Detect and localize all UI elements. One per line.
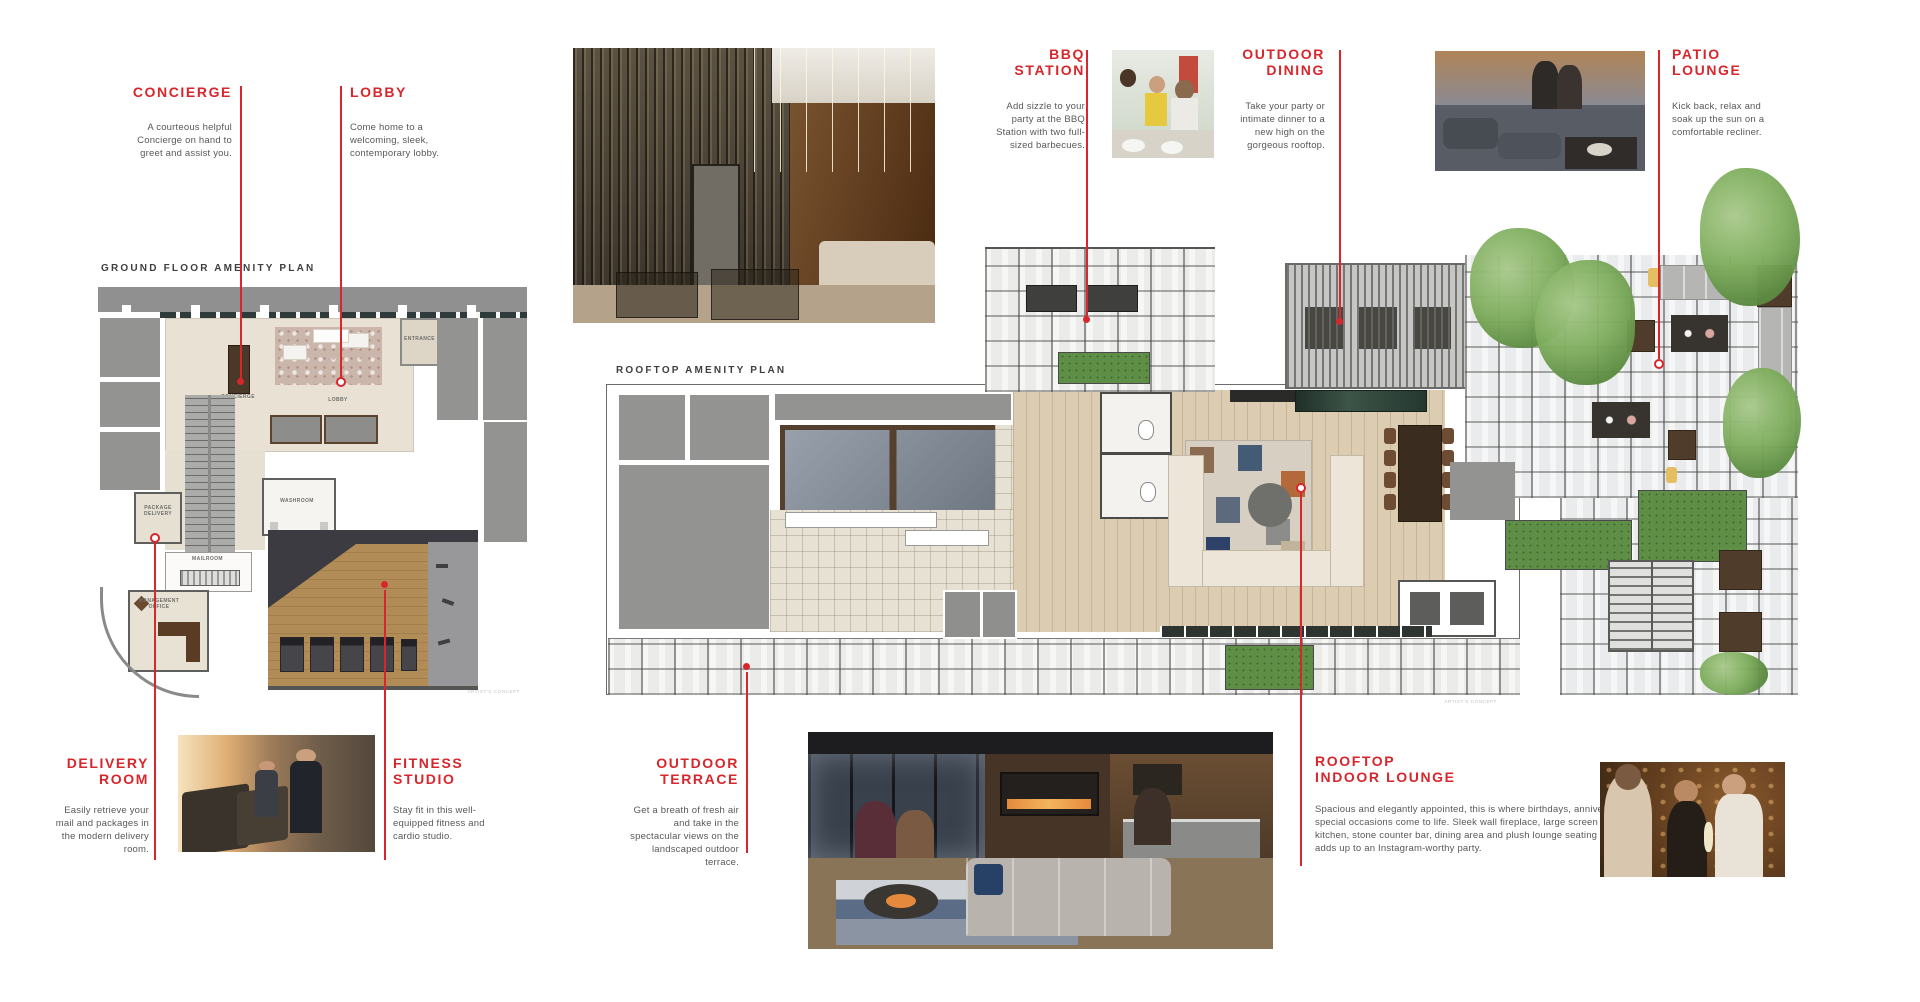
skylight-windows xyxy=(780,425,1006,520)
plate xyxy=(1122,139,1144,152)
callout-outdoor-terrace-title: OUTDOOR TERRACE xyxy=(647,755,739,787)
wall-gap xyxy=(100,377,160,382)
brochure-page: CONCIERGE A courteous helpful Concierge … xyxy=(0,0,1920,1002)
patio-lounge-chair xyxy=(1719,550,1762,590)
sectional-sofa xyxy=(966,858,1171,936)
window-mullion xyxy=(890,430,897,515)
concierge-desk xyxy=(228,345,250,394)
roof-strip-room xyxy=(775,394,1011,420)
callout-delivery-room-title: DELIVERY ROOM xyxy=(57,755,149,787)
cushion-seams xyxy=(966,858,1171,936)
fireplace-flames xyxy=(1007,799,1091,809)
patio-lounge-photo xyxy=(1435,51,1645,171)
patio-lounge-chair xyxy=(1719,612,1762,652)
treadmill xyxy=(370,637,394,672)
treadmill xyxy=(310,637,334,672)
outdoor-dining-photo xyxy=(1112,50,1214,158)
callout-outdoor-terrace-description: Get a breath of fresh air and take in th… xyxy=(629,804,739,869)
leader-line-outdoor-dining xyxy=(1339,50,1341,318)
callout-fitness-studio-description: Stay fit in this well-equipped fitness a… xyxy=(393,804,493,843)
man-white-shirt xyxy=(1715,794,1763,877)
callout-delivery-room-description: Easily retrieve your mail and packages i… xyxy=(50,804,149,856)
bbq-grill xyxy=(1087,285,1138,312)
column xyxy=(467,305,476,318)
washroom xyxy=(262,478,336,536)
bbq-grill xyxy=(1026,285,1077,312)
callout-outdoor-dining-description: Take your party or intimate dinner to a … xyxy=(1224,100,1325,152)
callout-bbq-station-title: BBQ STATION xyxy=(975,46,1085,78)
runner-body xyxy=(290,761,322,834)
wood-feature-wall xyxy=(985,754,1111,858)
treadmill xyxy=(340,637,364,672)
leader-line-bbq-station xyxy=(1086,50,1088,316)
callout-patio-lounge-description: Kick back, relax and soak up the sun on … xyxy=(1672,100,1772,139)
column xyxy=(260,305,269,318)
wall-gap xyxy=(100,427,160,432)
kitchen-appliance xyxy=(1410,592,1440,625)
tv-fireplace-wall xyxy=(1230,390,1295,402)
dining-chair xyxy=(1442,428,1454,444)
service-rooms xyxy=(100,318,160,490)
rooftop-washrooms xyxy=(1100,392,1172,519)
person-head xyxy=(1722,774,1746,797)
service-room xyxy=(1450,462,1515,520)
ground-plan-back-band xyxy=(98,287,527,312)
wall-gap xyxy=(478,318,483,420)
leader-marker-bbq-station xyxy=(1083,316,1090,323)
mailboxes xyxy=(180,570,240,586)
wine-glass xyxy=(1704,822,1713,852)
woman-black-dress xyxy=(1667,801,1708,877)
person-head xyxy=(1120,69,1136,86)
leader-marker-concierge xyxy=(237,378,244,385)
fitness-south-wall xyxy=(268,686,478,690)
lounge-sectional-sofa xyxy=(1330,455,1364,587)
room-label-lobby: LOBBY xyxy=(308,397,368,403)
lounge-sectional-sofa xyxy=(1168,455,1204,587)
leader-line-lobby xyxy=(340,86,342,378)
callout-fitness-studio-title: FITNESS STUDIO xyxy=(393,755,493,787)
fruit-bowl xyxy=(1587,143,1613,156)
stretch-mat-area xyxy=(428,542,478,688)
person-silhouette xyxy=(1532,61,1559,111)
sofa-cushion xyxy=(1498,133,1561,159)
person-silhouette xyxy=(1134,788,1171,844)
column xyxy=(329,305,338,318)
callout-rooftop-indoor-lounge-title: ROOFTOP INDOOR LOUNGE xyxy=(1315,753,1535,785)
outdoor-dining-pergola xyxy=(1285,263,1469,389)
tree xyxy=(1700,652,1768,695)
dining-chair xyxy=(1384,428,1396,444)
patio-table xyxy=(1671,315,1728,352)
leader-line-outdoor-terrace xyxy=(746,672,748,853)
rooftop-indoor-lounge-photo xyxy=(808,732,1273,949)
room-label-package-delivery: PACKAGE DELIVERY xyxy=(134,505,182,517)
tree xyxy=(1700,168,1800,306)
column xyxy=(398,305,407,318)
leader-marker-rooftop-indoor-lounge xyxy=(1296,483,1306,493)
dumbbell xyxy=(438,639,451,646)
elevator xyxy=(324,415,378,444)
leader-marker-outdoor-dining xyxy=(1336,318,1343,325)
toilet xyxy=(1138,420,1154,440)
toilet xyxy=(1140,482,1156,502)
lounge-dining-table xyxy=(1398,425,1442,522)
ceiling xyxy=(808,732,1273,754)
dumbbell xyxy=(442,598,455,606)
room-label-entrance: ENTRANCE xyxy=(400,336,439,342)
tree xyxy=(1535,260,1635,385)
washroom-fixture xyxy=(320,522,328,530)
leader-line-fitness-studio xyxy=(384,590,386,860)
lobby-table xyxy=(313,329,349,343)
treadmill xyxy=(280,637,304,672)
leader-line-patio-lounge xyxy=(1658,50,1660,359)
rug-patch xyxy=(1216,497,1240,523)
person-head xyxy=(1615,764,1641,789)
patio-armchair xyxy=(1668,430,1696,460)
callout-bbq-station-description: Add sizzle to your party at the BBQ Stat… xyxy=(983,100,1085,152)
leader-line-delivery-room xyxy=(154,543,156,860)
ground-plan-title: GROUND FLOOR AMENITY PLAN xyxy=(101,263,315,274)
wall-gap xyxy=(980,592,983,637)
person-silhouette xyxy=(855,801,897,857)
person-head xyxy=(1149,76,1165,93)
terrace-bench xyxy=(905,530,989,546)
plate xyxy=(1161,141,1183,154)
yellow-top xyxy=(1145,93,1167,125)
round-ottoman xyxy=(1248,483,1292,527)
leader-marker-patio-lounge xyxy=(1654,359,1664,369)
person-silhouette xyxy=(896,810,933,858)
column xyxy=(122,305,131,318)
lobby-photo xyxy=(573,48,935,323)
fire-bowl xyxy=(886,894,916,908)
dumbbell xyxy=(436,564,448,568)
wall-gap xyxy=(685,395,690,465)
callout-concierge-title: CONCIERGE xyxy=(112,84,232,100)
service-room xyxy=(943,590,1017,639)
rug-patch xyxy=(1238,445,1262,471)
stone-counter-bar xyxy=(1295,390,1427,412)
dining-chair xyxy=(1384,472,1396,488)
yellow-cushion xyxy=(1666,467,1677,483)
runner-body xyxy=(255,770,279,817)
callout-outdoor-dining-title: OUTDOOR DINING xyxy=(1215,46,1325,78)
fire-table xyxy=(864,884,938,919)
washroom-divider-wall xyxy=(1102,452,1170,455)
wall-fireplace xyxy=(1000,772,1099,816)
pendant-lights xyxy=(754,48,935,172)
elliptical-trainer xyxy=(401,639,417,671)
leader-marker-lobby xyxy=(336,377,346,387)
person-silhouette xyxy=(1557,65,1582,111)
dining-chair xyxy=(1384,450,1396,466)
curved-facade-wall xyxy=(100,587,199,698)
fitness-studio-photo xyxy=(178,735,375,852)
kitchen-appliance xyxy=(1450,592,1484,625)
leader-line-concierge xyxy=(240,86,242,382)
lounge-glazed-wall xyxy=(1160,626,1432,637)
tiled-terrace-floor xyxy=(995,425,1013,510)
lounge-sectional-sofa xyxy=(1202,550,1334,587)
patio-table xyxy=(1565,137,1636,168)
planter-hedge xyxy=(1058,352,1150,384)
ground-floor-plan: CONCIERGE LOBBY ENTRANCE WASHROOM PACKAG… xyxy=(98,287,527,700)
leader-line-rooftop-indoor-lounge xyxy=(1300,493,1302,866)
stairwell xyxy=(185,395,235,560)
column xyxy=(191,305,200,318)
elevator xyxy=(270,415,322,444)
room-label-washroom: WASHROOM xyxy=(266,498,328,504)
party-photo xyxy=(1600,762,1785,877)
mechanical-rooms xyxy=(619,395,769,629)
lobby-sofa xyxy=(283,345,307,360)
glass-coffee-table xyxy=(616,272,698,318)
wall-gap xyxy=(619,460,769,465)
stair-divider xyxy=(1651,562,1653,650)
callout-concierge-description: A courteous helpful Concierge on hand to… xyxy=(120,121,232,160)
white-shirt xyxy=(1171,98,1198,135)
callout-patio-lounge-title: PATIO LOUNGE xyxy=(1672,46,1782,78)
patio-table xyxy=(1592,402,1650,438)
washroom-fixture xyxy=(270,522,278,530)
pergola-slats xyxy=(1287,265,1467,387)
dining-chair xyxy=(1384,494,1396,510)
leader-marker-delivery-room xyxy=(150,533,160,543)
side-room xyxy=(484,422,527,542)
leader-marker-fitness-studio xyxy=(381,581,388,588)
sofa-cushion xyxy=(1443,118,1498,149)
room-label-mailroom: MAILROOM xyxy=(165,556,250,562)
roof-stairs xyxy=(1608,560,1694,652)
leader-marker-outdoor-terrace xyxy=(743,663,750,670)
callout-lobby-description: Come home to a welcoming, sleek, contemp… xyxy=(350,121,462,160)
entrance-vestibule xyxy=(400,318,439,366)
window-sill-bench xyxy=(785,512,937,528)
glass-coffee-table xyxy=(711,269,800,321)
stair-divider xyxy=(208,395,211,560)
callout-lobby-title: LOBBY xyxy=(350,84,470,100)
